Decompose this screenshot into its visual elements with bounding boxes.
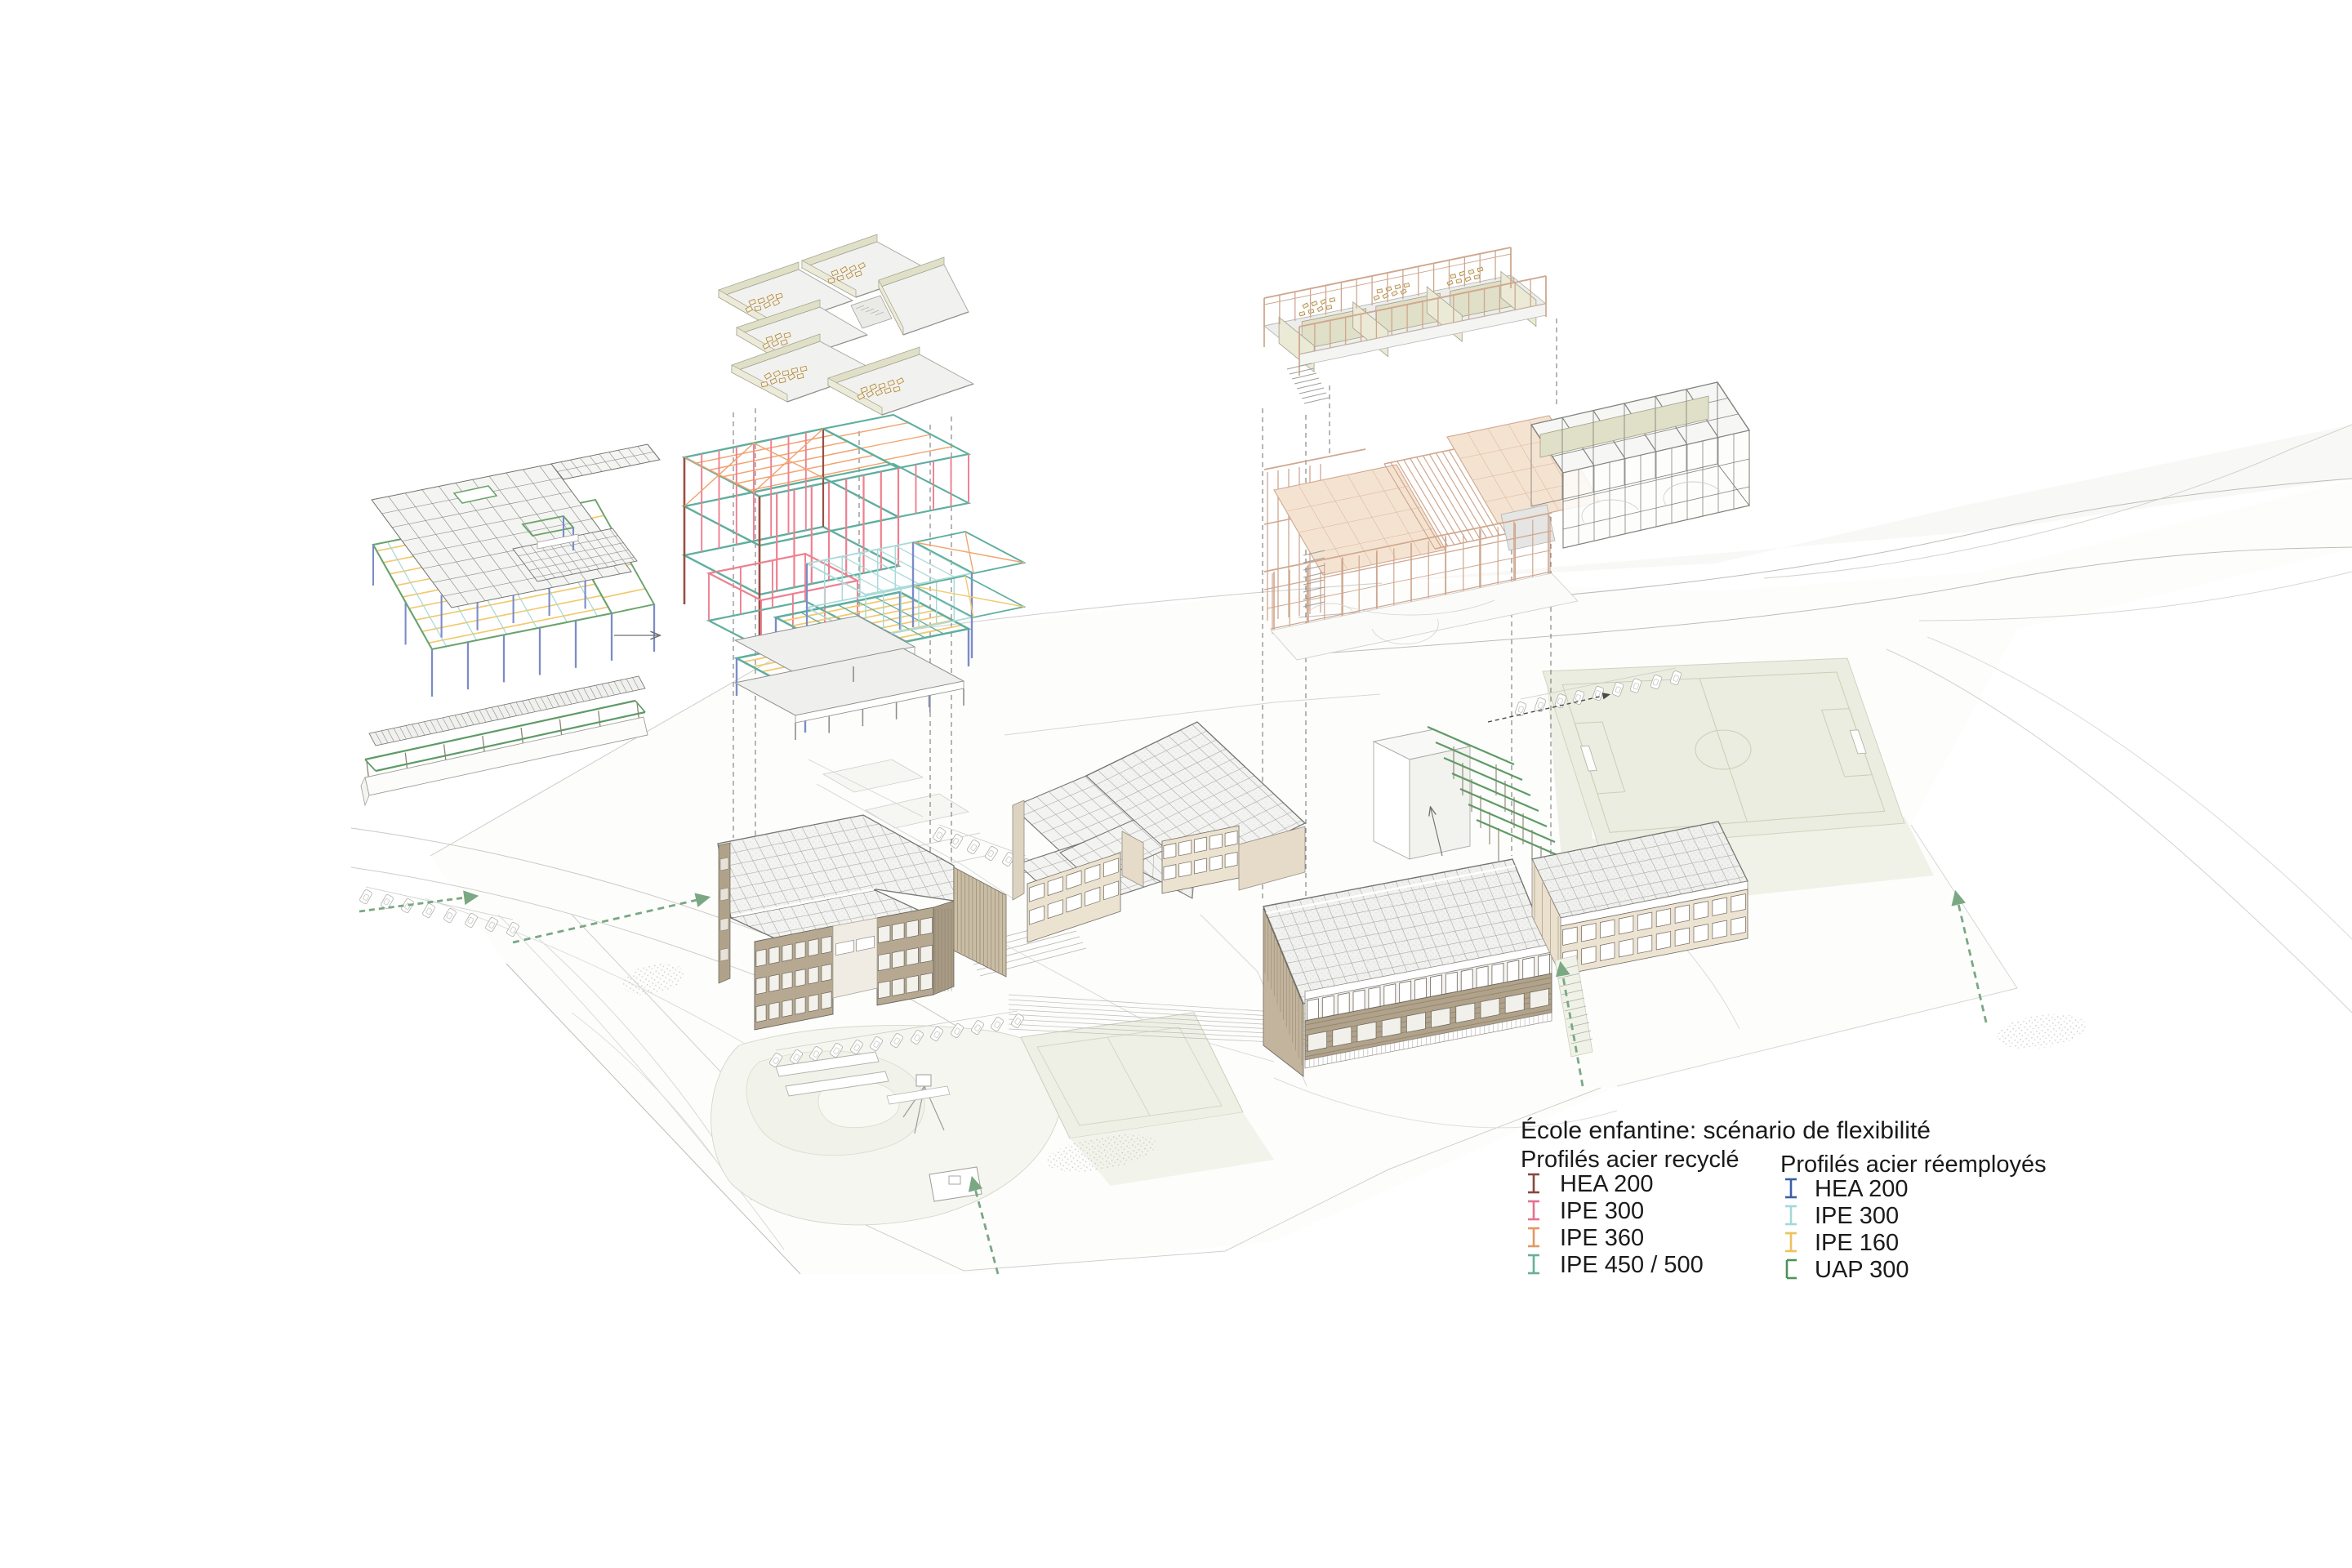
svg-text:IPE 300: IPE 300 xyxy=(1815,1203,1899,1229)
svg-text:IPE 450 / 500: IPE 450 / 500 xyxy=(1560,1252,1704,1278)
svg-text:École enfantine: scénario de f: École enfantine: scénario de flexibilité xyxy=(1521,1117,1931,1144)
svg-text:Profilés acier recyclé: Profilés acier recyclé xyxy=(1521,1147,1739,1173)
svg-text:UAP 300: UAP 300 xyxy=(1815,1257,1909,1283)
svg-text:IPE 160: IPE 160 xyxy=(1815,1230,1899,1256)
svg-text:HEA 200: HEA 200 xyxy=(1815,1176,1908,1202)
svg-text:Profilés acier réemployés: Profilés acier réemployés xyxy=(1780,1151,2047,1178)
svg-text:HEA 200: HEA 200 xyxy=(1560,1171,1653,1197)
svg-text:IPE 300: IPE 300 xyxy=(1560,1198,1644,1224)
svg-text:IPE 360: IPE 360 xyxy=(1560,1225,1644,1251)
